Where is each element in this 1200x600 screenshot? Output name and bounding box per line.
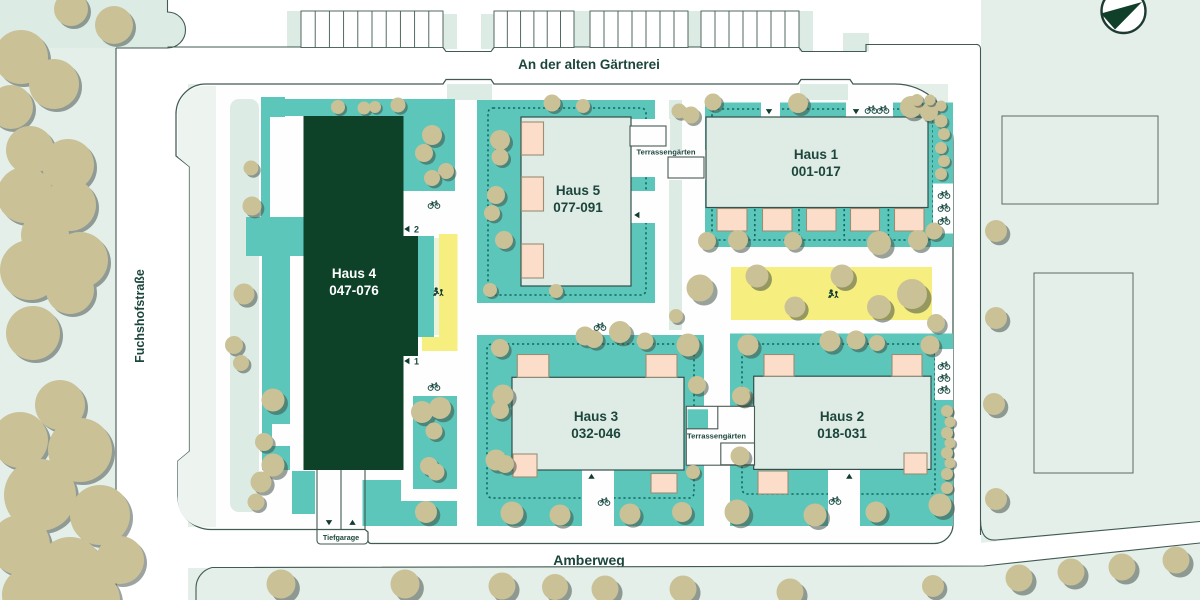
svg-text:Haus 3: Haus 3 xyxy=(574,409,619,424)
svg-text:1: 1 xyxy=(414,357,419,367)
svg-text:032-046: 032-046 xyxy=(571,426,621,441)
svg-text:001-017: 001-017 xyxy=(791,164,841,179)
svg-text:077-091: 077-091 xyxy=(553,200,603,215)
svg-text:Tiefgarage: Tiefgarage xyxy=(323,533,359,542)
svg-text:2: 2 xyxy=(414,225,419,235)
svg-text:Terrassengärten: Terrassengärten xyxy=(687,432,746,441)
svg-text:Haus 1: Haus 1 xyxy=(794,147,839,162)
svg-text:018-031: 018-031 xyxy=(817,426,867,441)
svg-text:Haus 5: Haus 5 xyxy=(556,183,601,198)
svg-text:047-076: 047-076 xyxy=(329,283,379,298)
svg-text:Fuchshofstraße: Fuchshofstraße xyxy=(133,269,147,363)
svg-text:Haus 2: Haus 2 xyxy=(820,409,864,424)
svg-text:An der alten Gärtnerei: An der alten Gärtnerei xyxy=(518,57,660,72)
svg-text:Amberweg: Amberweg xyxy=(553,552,625,568)
svg-text:Terrassengärten: Terrassengärten xyxy=(637,148,696,157)
svg-text:Haus 4: Haus 4 xyxy=(332,266,377,281)
